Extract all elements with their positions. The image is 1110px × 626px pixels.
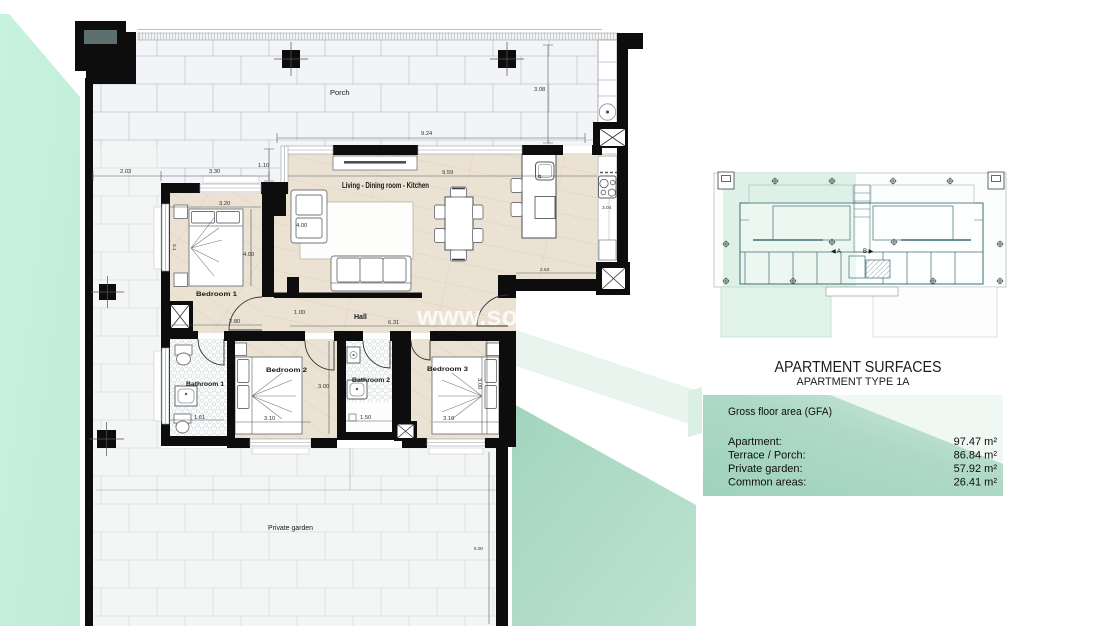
svg-text:9.24: 9.24 bbox=[421, 131, 433, 137]
svg-text:Private garden:: Private garden: bbox=[728, 463, 803, 475]
svg-text:Bedroom 1: Bedroom 1 bbox=[196, 291, 237, 298]
svg-text:Private garden: Private garden bbox=[268, 523, 313, 532]
svg-text:6.00: 6.00 bbox=[474, 546, 483, 551]
svg-text:Common areas:: Common areas: bbox=[728, 477, 806, 489]
svg-text:2.03: 2.03 bbox=[120, 169, 131, 175]
svg-text:1.00: 1.00 bbox=[294, 310, 305, 316]
svg-text:86.84 m²: 86.84 m² bbox=[954, 450, 998, 462]
svg-text:Porch: Porch bbox=[330, 88, 350, 97]
svg-text:1.50: 1.50 bbox=[360, 415, 371, 421]
svg-text:4.00: 4.00 bbox=[243, 252, 254, 258]
svg-text:3.04: 3.04 bbox=[602, 205, 612, 211]
svg-text:Bathroom 2: Bathroom 2 bbox=[352, 377, 390, 384]
svg-text:4.00: 4.00 bbox=[296, 223, 307, 229]
svg-text:Living - Dining room - Kitchen: Living - Dining room - Kitchen bbox=[342, 181, 429, 190]
svg-text:Apartment:: Apartment: bbox=[728, 436, 782, 448]
svg-text:3.00: 3.00 bbox=[318, 384, 329, 390]
svg-text:Bathroom 1: Bathroom 1 bbox=[186, 381, 224, 388]
svg-text:Gross floor area (GFA): Gross floor area (GFA) bbox=[728, 406, 832, 418]
svg-text:B ▶: B ▶ bbox=[863, 249, 874, 255]
svg-text:3.10: 3.10 bbox=[443, 416, 454, 422]
svg-text:97.47 m²: 97.47 m² bbox=[954, 436, 998, 448]
svg-text:2.80: 2.80 bbox=[229, 319, 240, 325]
svg-text:3.08: 3.08 bbox=[534, 87, 545, 93]
svg-text:3.10: 3.10 bbox=[264, 416, 275, 422]
svg-text:Bedroom 3: Bedroom 3 bbox=[427, 366, 468, 373]
svg-text:APARTMENT SURFACES: APARTMENT SURFACES bbox=[775, 359, 942, 376]
svg-text:6.31: 6.31 bbox=[388, 320, 399, 326]
svg-text:3.30: 3.30 bbox=[209, 169, 220, 175]
svg-text:3.00: 3.00 bbox=[476, 378, 482, 389]
svg-text:2.63: 2.63 bbox=[540, 267, 550, 273]
svg-text:Hall: Hall bbox=[354, 314, 367, 321]
svg-text:www.sol: www.sol bbox=[416, 301, 526, 331]
svg-text:1.10: 1.10 bbox=[258, 163, 269, 169]
svg-text:3.1: 3.1 bbox=[172, 244, 177, 251]
svg-text:Terrace / Porch:: Terrace / Porch: bbox=[728, 450, 806, 462]
svg-text:APARTMENT TYPE 1A: APARTMENT TYPE 1A bbox=[797, 376, 911, 388]
svg-text:9.59: 9.59 bbox=[442, 170, 453, 176]
svg-text:1.61: 1.61 bbox=[194, 415, 205, 421]
svg-text:◀ A: ◀ A bbox=[831, 249, 841, 255]
svg-text:Bedroom 2: Bedroom 2 bbox=[266, 367, 307, 374]
svg-text:57.92 m²: 57.92 m² bbox=[954, 463, 998, 475]
svg-text:26.41 m²: 26.41 m² bbox=[954, 477, 998, 489]
svg-text:3.20: 3.20 bbox=[219, 201, 230, 207]
